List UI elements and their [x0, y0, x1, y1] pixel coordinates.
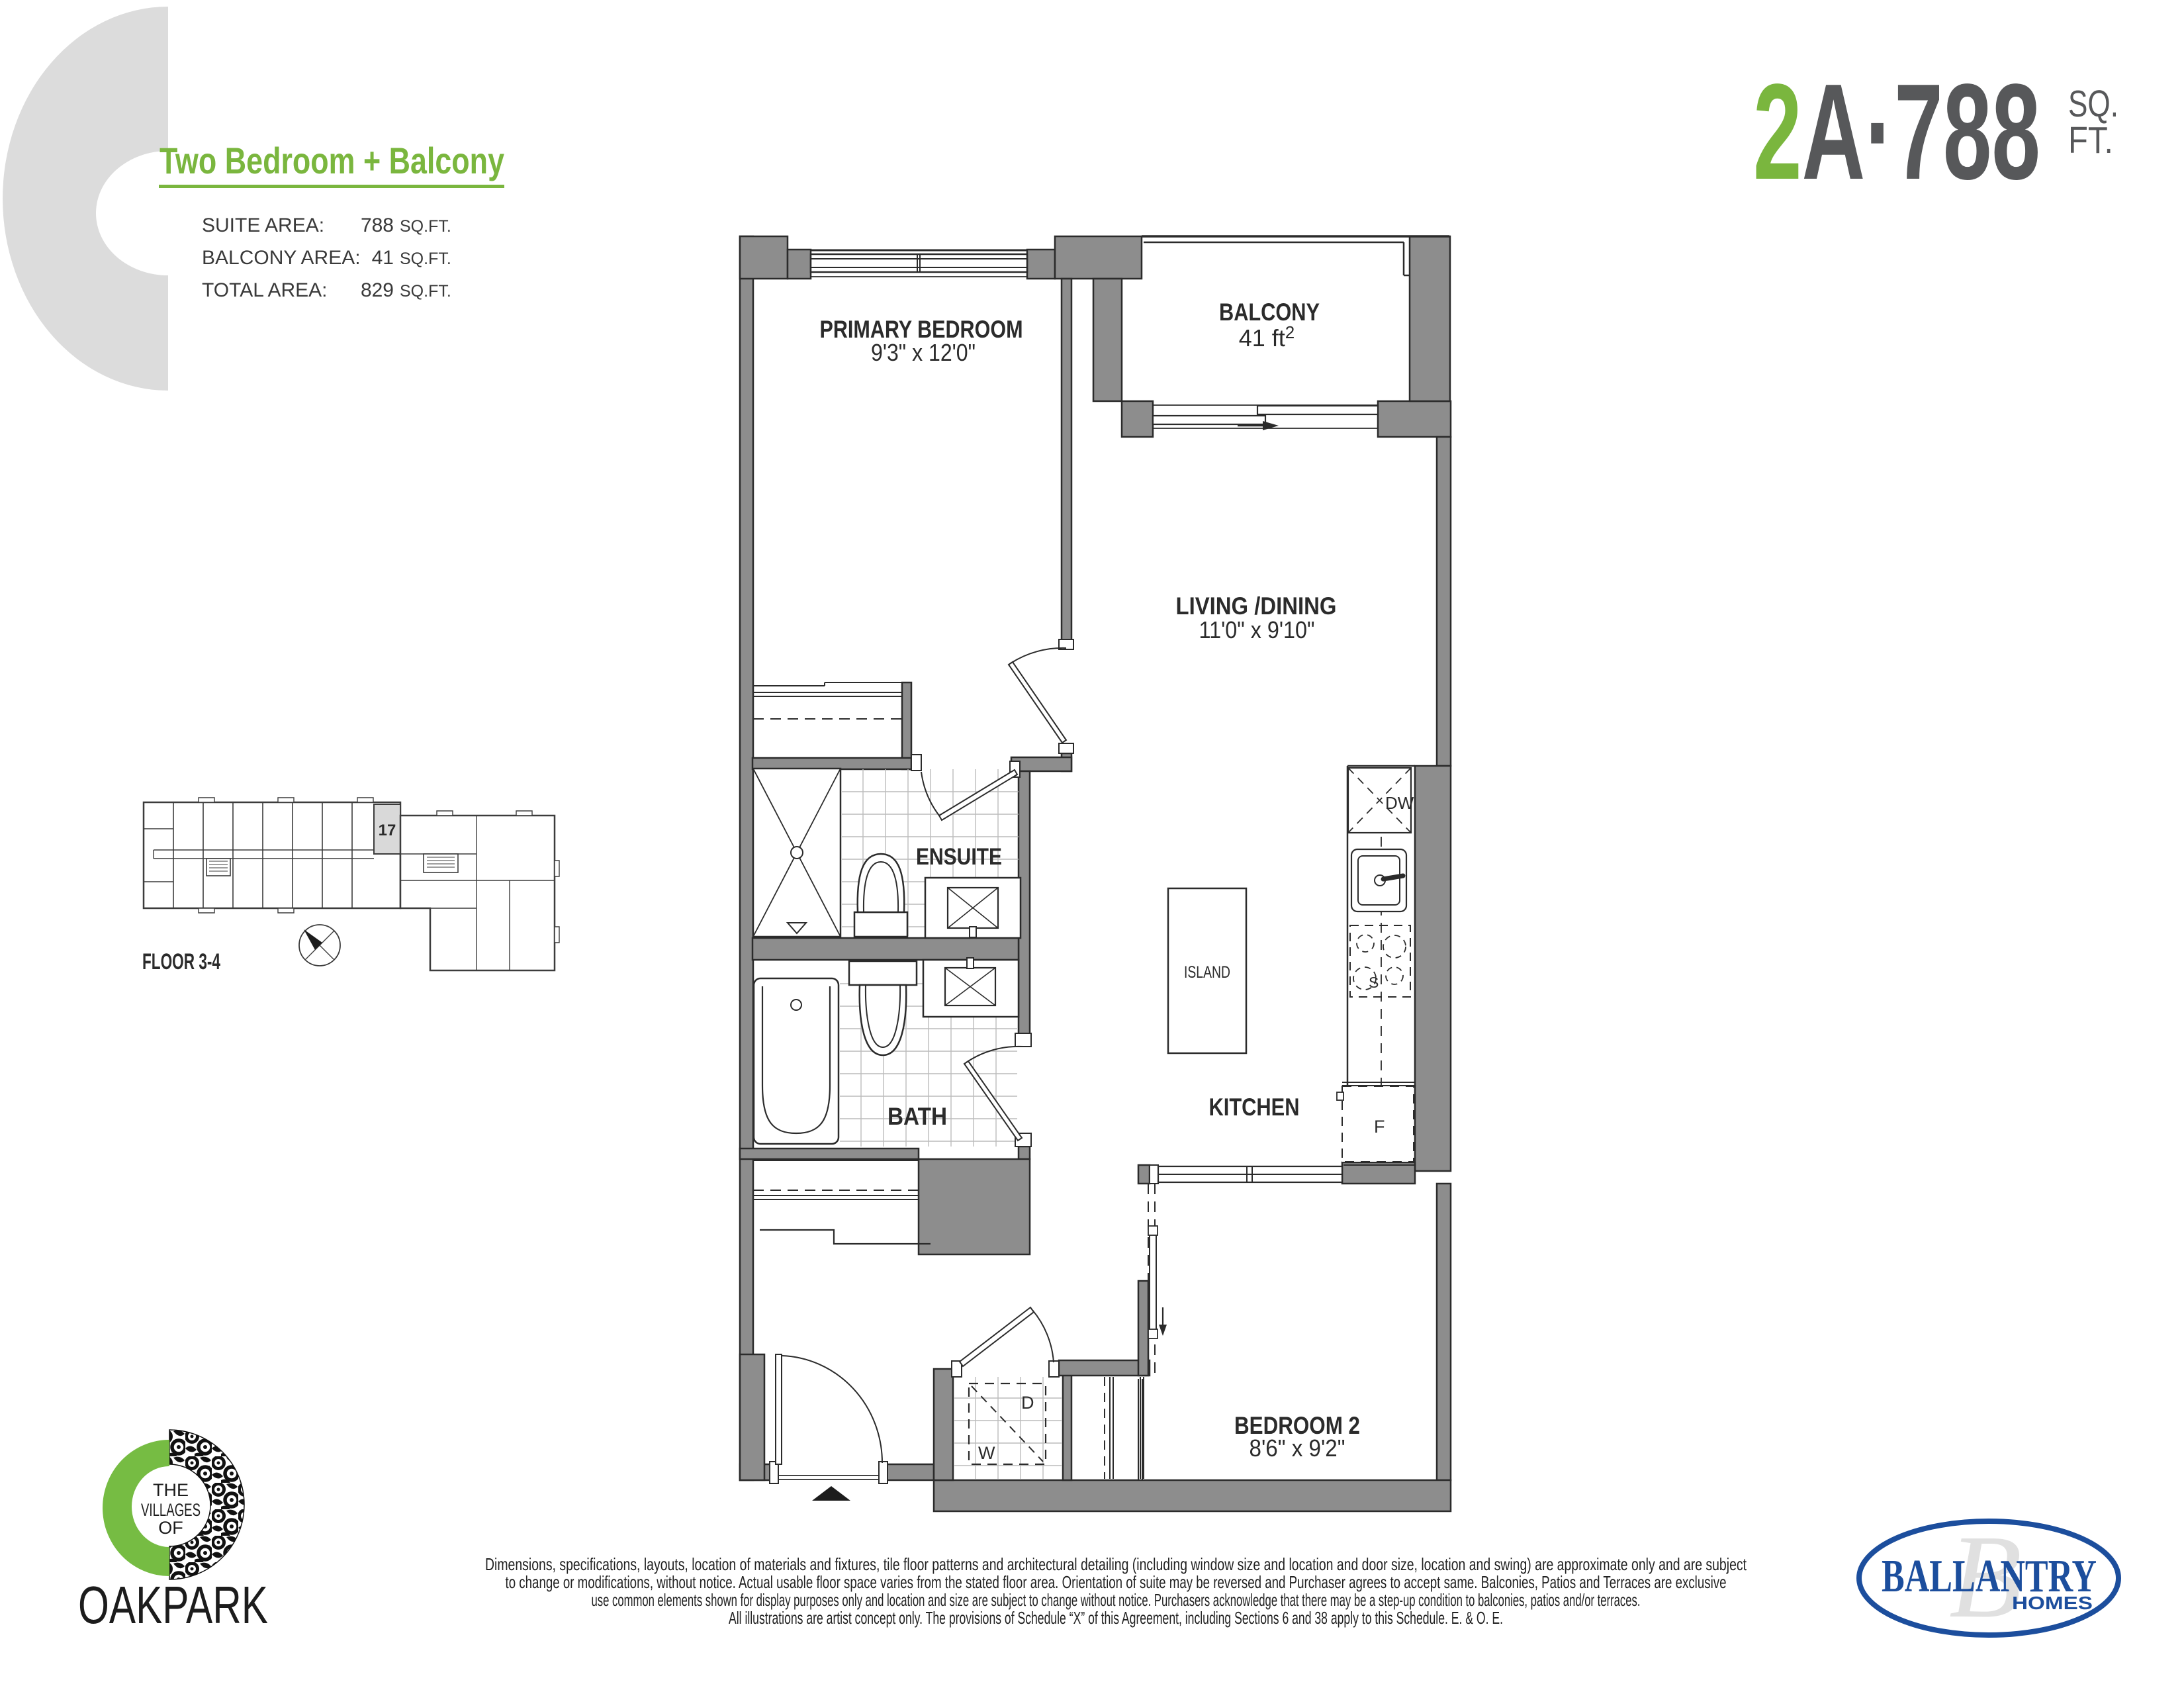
- svg-text:9'3" x 12'0": 9'3" x 12'0": [871, 339, 976, 366]
- svg-text:DW: DW: [1385, 793, 1414, 813]
- svg-text:BATH: BATH: [887, 1103, 947, 1130]
- svg-text:S: S: [1369, 974, 1379, 991]
- svg-text:SQ.FT.: SQ.FT.: [400, 282, 451, 301]
- svg-text:Two Bedroom + Balcony: Two Bedroom + Balcony: [159, 140, 504, 181]
- svg-text:LIVING /DINING: LIVING /DINING: [1176, 592, 1337, 620]
- svg-text:OF: OF: [158, 1518, 183, 1538]
- svg-text:17: 17: [379, 821, 396, 839]
- svg-text:FT.: FT.: [2068, 119, 2113, 162]
- svg-text:All illustrations are artist c: All illustrations are artist concept onl…: [729, 1608, 1503, 1628]
- svg-text:W: W: [978, 1443, 995, 1463]
- svg-text:11'0" x 9'10": 11'0" x 9'10": [1199, 616, 1315, 643]
- svg-text:788: 788: [361, 214, 394, 236]
- svg-text:SQ.FT.: SQ.FT.: [400, 217, 451, 236]
- svg-text:to change or modifications, wi: to change or modifications, without noti…: [506, 1572, 1727, 1592]
- svg-text:THE: THE: [153, 1480, 189, 1500]
- svg-text:829: 829: [361, 279, 394, 301]
- svg-text:SQ.FT.: SQ.FT.: [400, 250, 451, 268]
- svg-text:ENSUITE: ENSUITE: [916, 844, 1002, 870]
- svg-text:BALCONY AREA:: BALCONY AREA:: [202, 247, 361, 269]
- svg-text:KITCHEN: KITCHEN: [1209, 1094, 1300, 1121]
- svg-text:use common elements shown for: use common elements shown for display pu…: [592, 1590, 1641, 1610]
- svg-text:ISLAND: ISLAND: [1184, 963, 1230, 982]
- svg-text:TOTAL AREA:: TOTAL AREA:: [202, 279, 328, 301]
- svg-text:8'6" x 9'2": 8'6" x 9'2": [1250, 1434, 1345, 1462]
- svg-text:VILLAGES: VILLAGES: [141, 1500, 201, 1520]
- svg-text:41: 41: [372, 247, 394, 269]
- svg-text:2A·788: 2A·788: [1753, 56, 2040, 208]
- svg-text:OAKPARK: OAKPARK: [78, 1575, 268, 1634]
- svg-text:FLOOR 3-4: FLOOR 3-4: [142, 949, 220, 974]
- svg-text:F: F: [1374, 1117, 1385, 1137]
- svg-text:Dimensions, specifications, la: Dimensions, specifications, layouts, loc…: [485, 1554, 1747, 1574]
- svg-text:BALCONY: BALCONY: [1219, 299, 1320, 326]
- svg-text:HOMES: HOMES: [2012, 1593, 2093, 1613]
- svg-text:D: D: [1021, 1393, 1034, 1413]
- svg-text:SUITE AREA:: SUITE AREA:: [202, 214, 324, 236]
